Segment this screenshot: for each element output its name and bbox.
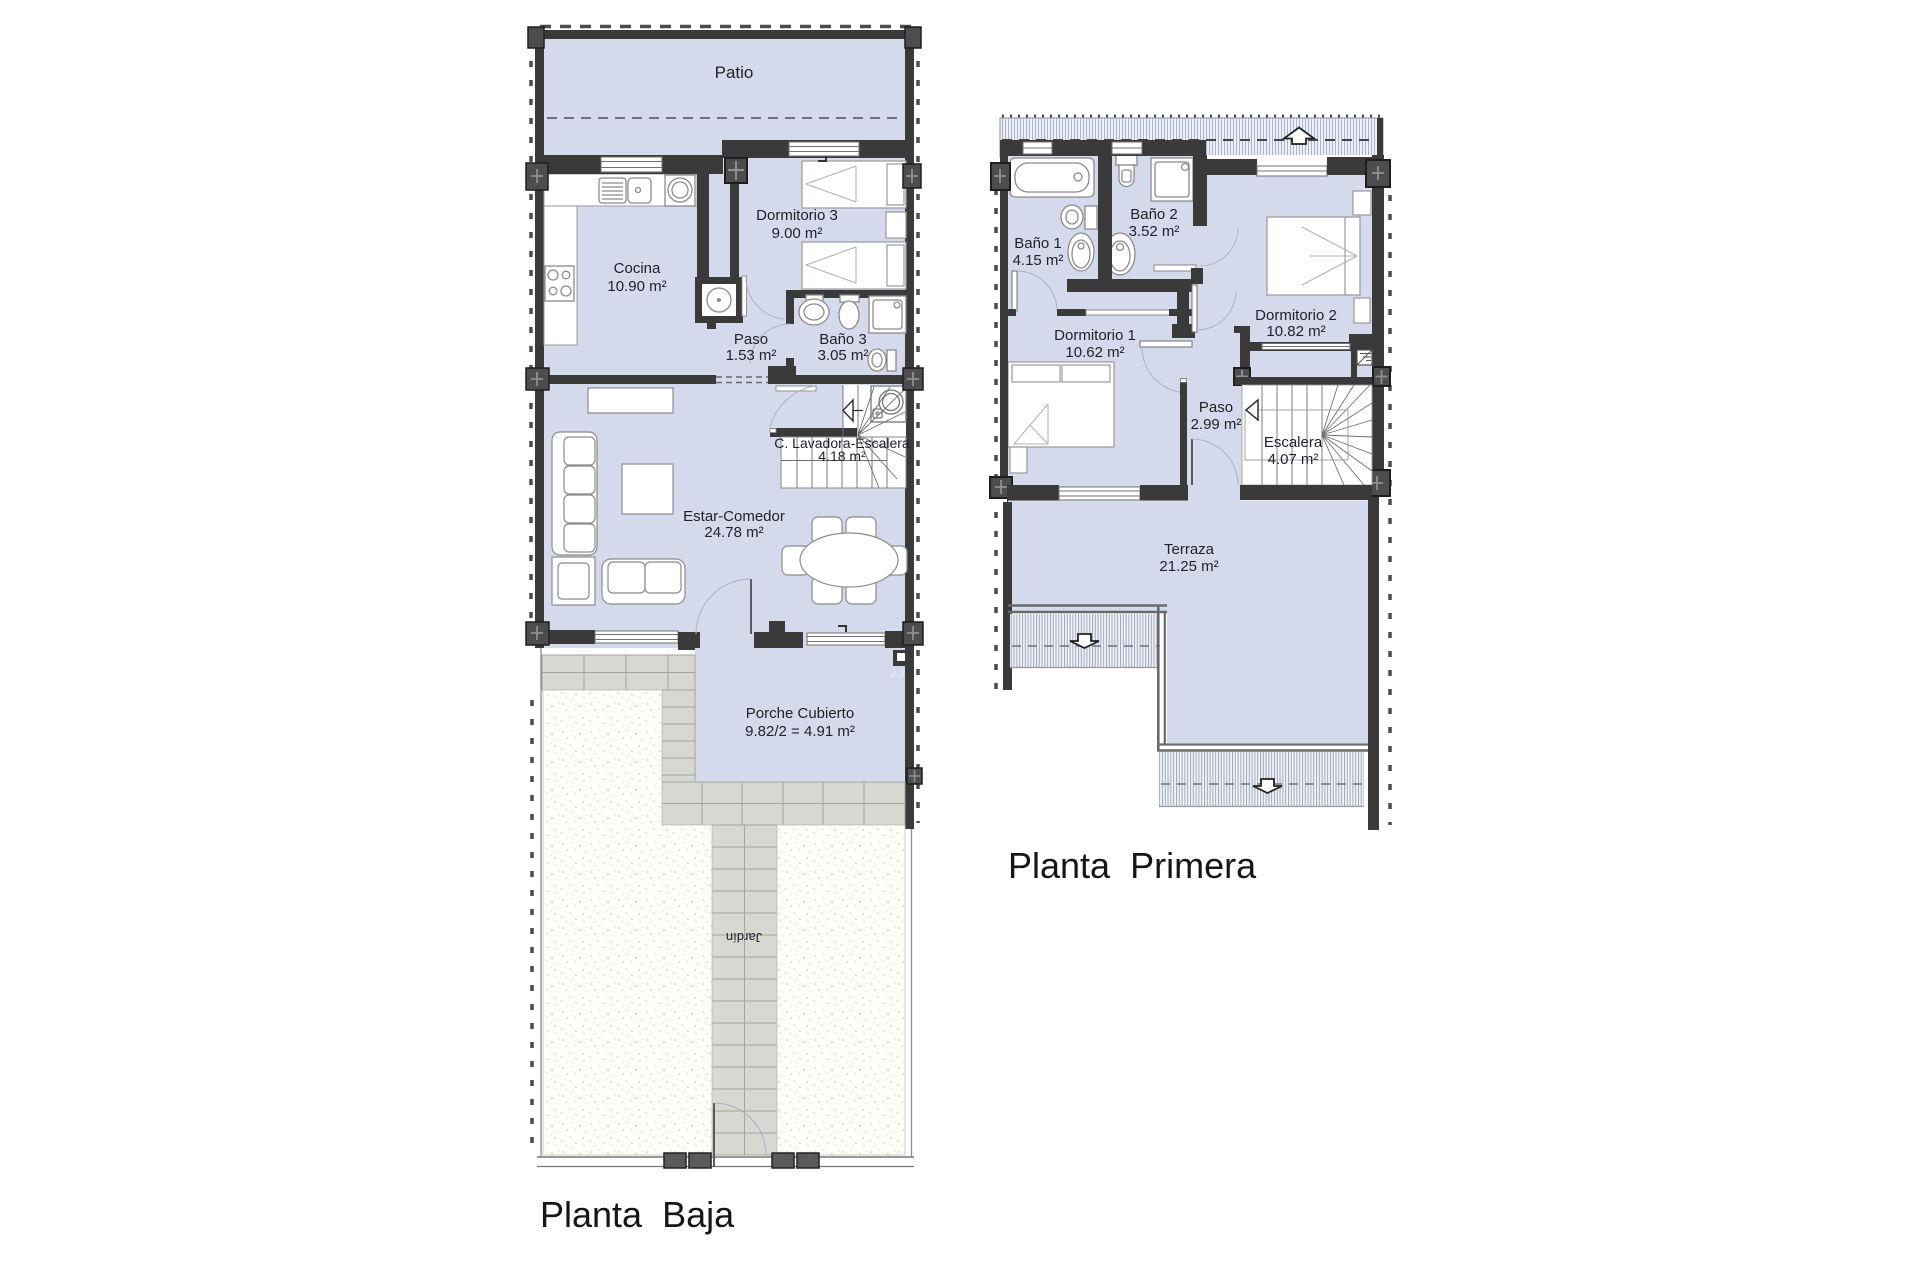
- svg-text:10.62 m²: 10.62 m²: [1065, 344, 1124, 361]
- svg-text:Baño 3: Baño 3: [819, 331, 867, 348]
- svg-text:Patio: Patio: [715, 63, 754, 82]
- svg-text:Jardín: Jardín: [726, 930, 762, 945]
- svg-text:Paso: Paso: [734, 331, 768, 348]
- svg-text:J J: J J: [890, 668, 904, 680]
- svg-text:Dormitorio 2: Dormitorio 2: [1255, 307, 1337, 324]
- svg-text:1.53 m²: 1.53 m²: [726, 347, 777, 364]
- svg-text:Escalera: Escalera: [1264, 434, 1323, 451]
- svg-text:3.05 m²: 3.05 m²: [818, 347, 869, 364]
- svg-text:Baño 1: Baño 1: [1014, 235, 1062, 252]
- svg-text:Paso: Paso: [1199, 399, 1233, 416]
- svg-text:Estar-Comedor: Estar-Comedor: [683, 508, 785, 525]
- svg-text:3.52 m²: 3.52 m²: [1129, 223, 1180, 240]
- svg-text:24.78 m²: 24.78 m²: [704, 524, 763, 541]
- svg-text:Terraza: Terraza: [1164, 541, 1215, 558]
- svg-text:2.99 m²: 2.99 m²: [1191, 416, 1242, 433]
- svg-text:Dormitorio 3: Dormitorio 3: [756, 207, 838, 224]
- svg-text:Planta Baja: Planta Baja: [540, 1194, 735, 1235]
- svg-text:9.82/2 = 4.91 m²: 9.82/2 = 4.91 m²: [745, 723, 855, 740]
- svg-text:Baño 2: Baño 2: [1130, 206, 1178, 223]
- svg-text:4.18 m²: 4.18 m²: [818, 448, 866, 464]
- svg-text:4.15 m²: 4.15 m²: [1013, 252, 1064, 269]
- svg-text:Porche Cubierto: Porche Cubierto: [746, 705, 854, 722]
- svg-text:10.82 m²: 10.82 m²: [1266, 323, 1325, 340]
- svg-text:10.90 m²: 10.90 m²: [607, 278, 666, 295]
- svg-text:4.07 m²: 4.07 m²: [1268, 451, 1319, 468]
- svg-text:21.25 m²: 21.25 m²: [1159, 558, 1218, 575]
- svg-text:9.00 m²: 9.00 m²: [772, 225, 823, 242]
- svg-text:Cocina: Cocina: [614, 260, 661, 277]
- svg-text:Dormitorio 1: Dormitorio 1: [1054, 327, 1136, 344]
- svg-text:Planta Primera: Planta Primera: [1008, 845, 1257, 886]
